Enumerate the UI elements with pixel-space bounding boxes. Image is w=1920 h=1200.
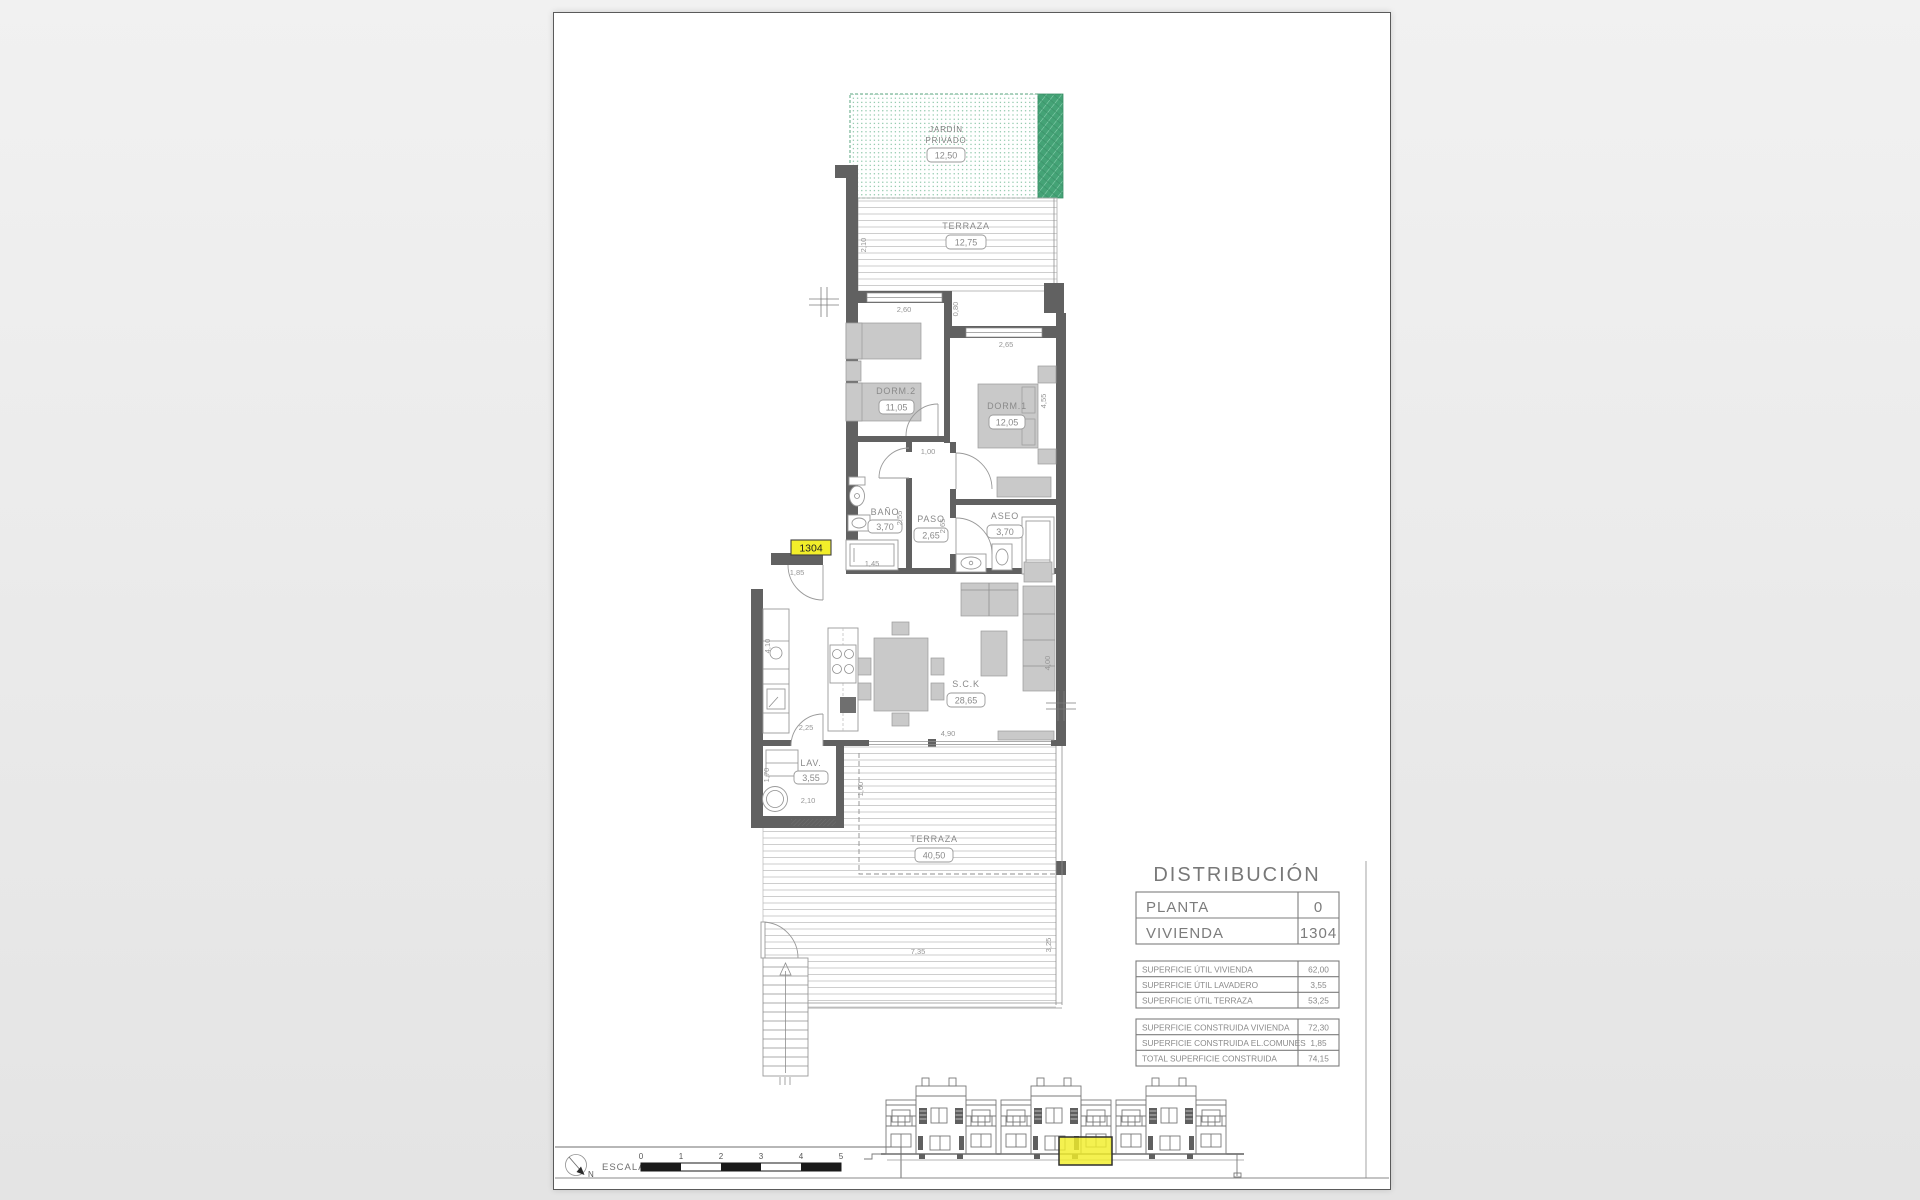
kitchen: 4,10 2,25 [763,609,858,746]
laundry-area: 3,55 [802,773,820,783]
tv-bench [998,731,1054,740]
dim-entry: 1,85 [790,568,805,577]
garden-label-line2: PRIVADO [925,136,966,145]
dim-t2-right: 3,25 [1044,938,1053,953]
dim-kitchen-left: 4,10 [763,639,772,654]
total-construida-value: 74,15 [1308,1054,1329,1064]
util-terraza-value: 53,25 [1308,996,1329,1006]
laundry-label: LAV. [800,758,821,768]
distribution-title: DISTRIBUCIÓN [1153,863,1320,886]
dim-t2-width: 7,35 [911,947,926,956]
scale-tick-4: 4 [799,1152,804,1161]
vivienda-value: 1304 [1300,925,1337,942]
dim-living-right: 4,00 [1043,656,1052,671]
laundry-vent [791,819,836,826]
bedroom-2-area: 11,05 [886,403,908,413]
dim-paso-right: 2,65 [938,519,947,534]
dim-bano-bottom: 1,45 [865,559,880,568]
living-area: 28,65 [955,696,978,706]
planta-value: 0 [1314,899,1323,916]
bedroom-2: DORM.2 11,05 2,60 0,80 [846,302,960,436]
util-lavadero-value: 3,55 [1310,980,1327,990]
garden-label-line1: JARDÍN [929,125,963,134]
construida-comunes-value: 1,85 [1310,1038,1327,1048]
dim-t2-left: 1,60 [856,782,865,797]
scale-tick-3: 3 [759,1152,764,1161]
kitchen-sink [840,697,856,713]
bedroom-1: DORM.1 12,05 2,65 4,55 [956,340,1056,497]
plan-drawing: JARDÍN PRIVADO 12,50 TERRAZA 12,75 2,10 [554,13,1390,1189]
unit-number-text: 1304 [799,543,823,555]
util-lavadero-label: SUPERFICIE ÚTIL LAVADERO [1142,980,1259,990]
page-background: JARDÍN PRIVADO 12,50 TERRAZA 12,75 2,10 [0,0,1920,1200]
dim-d1-top: 2,65 [999,340,1014,349]
dining-set [858,622,944,726]
laundry: LAV. 3,55 1,70 2,10 [762,750,836,826]
upper-terrace: TERRAZA 12,75 2,10 [858,198,1057,291]
bedroom-2-label: DORM.2 [876,386,916,396]
util-vivienda-value: 62,00 [1308,965,1329,975]
dim-paso-left: 2,55 [895,511,904,526]
floor-plan-sheet: JARDÍN PRIVADO 12,50 TERRAZA 12,75 2,10 [553,12,1391,1190]
total-construida-label: TOTAL SUPERFICIE CONSTRUIDA [1142,1054,1277,1064]
bathroom-area: 3,70 [876,522,894,532]
toilet-room-area: 3,70 [996,527,1014,537]
highlighted-unit [1059,1137,1112,1165]
construida-comunes-label: SUPERFICIE CONSTRUIDA EL.COMUNES [1142,1038,1306,1048]
building-elevation [864,1078,1244,1177]
upper-terrace-label: TERRAZA [942,221,990,231]
dim-d1-right: 4,55 [1039,394,1048,409]
scale-tick-0: 0 [639,1152,644,1161]
dim-d2-top: 2,60 [897,305,912,314]
planta-label: PLANTA [1146,899,1209,916]
garden-hedge-strip [1038,94,1063,198]
bedroom-1-label: DORM.1 [987,401,1027,411]
north-compass-icon: N [566,1155,595,1180]
scale-tick-1: 1 [679,1152,684,1161]
private-garden: JARDÍN PRIVADO 12,50 [850,94,1063,198]
vivienda-label: VIVIENDA [1146,925,1224,942]
construida-vivienda-label: SUPERFICIE CONSTRUIDA VIVIENDA [1142,1023,1290,1033]
dim-terrace-left: 2,10 [859,238,868,253]
dim-lav-bottom: 2,10 [801,796,816,805]
toilet-room-label: ASEO [991,511,1019,521]
scale-tick-5: 5 [839,1152,844,1161]
garden-area: 12,50 [935,151,958,161]
lower-terrace-area: 40,50 [923,851,946,861]
construida-vivienda-value: 72,30 [1308,1023,1329,1033]
util-terraza-label: SUPERFICIE ÚTIL TERRAZA [1142,996,1253,1006]
distribution-block: DISTRIBUCIÓN PLANTA 0 VIVIENDA 1304 SUPE… [1136,861,1366,1178]
bedroom-1-area: 12,05 [996,418,1019,428]
dim-kitchen-door: 2,25 [799,723,814,732]
scale-bar: 0 1 2 3 4 5 [639,1152,844,1171]
north-letter: N [588,1170,594,1179]
util-vivienda-label: SUPERFICIE ÚTIL VIVIENDA [1142,965,1253,975]
dim-lav-left: 1,70 [762,768,771,783]
living-label: S.C.K [952,679,980,689]
exterior-stairs [763,958,808,1085]
dim-d2-right: 0,80 [951,302,960,317]
sofa-group [961,562,1055,740]
entry: 1304 1,85 [788,540,831,600]
title-strip: N ESCALA : 0 1 2 3 4 5 [555,1147,1389,1179]
lower-terrace-label: TERRAZA [910,834,958,844]
dim-paso-top: 1,00 [921,447,936,456]
dim-living-bottom: 4,90 [941,729,956,738]
hallway: PASO 2,65 1,00 2,55 2,65 [895,447,948,542]
scale-tick-2: 2 [719,1152,724,1161]
upper-terrace-area: 12,75 [955,238,978,248]
